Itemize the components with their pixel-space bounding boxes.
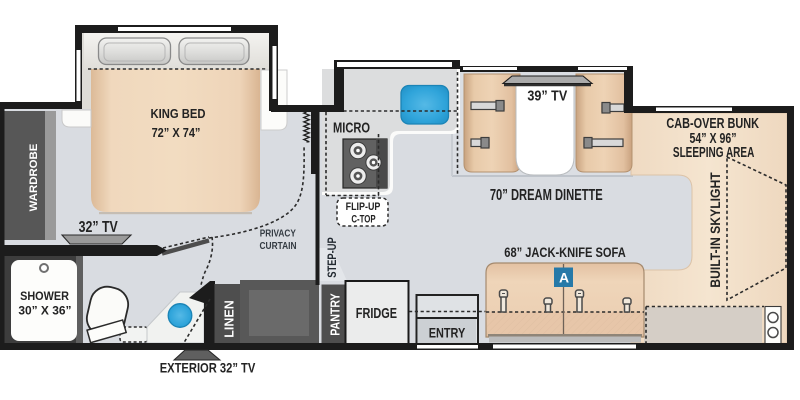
svg-text:PANTRY: PANTRY [327, 293, 342, 336]
svg-text:SLEEPING AREA: SLEEPING AREA [673, 143, 754, 161]
svg-text:32” TV: 32” TV [79, 218, 119, 236]
svg-text:72” X 74”: 72” X 74” [152, 125, 201, 140]
svg-text:SHOWER: SHOWER [20, 291, 69, 303]
svg-text:A: A [559, 270, 569, 286]
svg-text:C-TOP: C-TOP [351, 213, 375, 224]
svg-text:39” TV: 39” TV [527, 86, 568, 103]
svg-text:LINEN: LINEN [223, 300, 237, 338]
svg-text:FLIP-UP: FLIP-UP [346, 201, 381, 213]
svg-text:STEP-UP: STEP-UP [326, 237, 339, 277]
svg-text:MICRO: MICRO [333, 119, 370, 136]
svg-text:CURTAIN: CURTAIN [260, 240, 297, 251]
svg-text:EXTERIOR 32” TV: EXTERIOR 32” TV [160, 360, 256, 375]
svg-text:KING BED: KING BED [151, 106, 206, 121]
svg-text:FRIDGE: FRIDGE [356, 304, 398, 321]
svg-text:70” DREAM DINETTE: 70” DREAM DINETTE [490, 186, 603, 203]
svg-text:68” JACK-KNIFE SOFA: 68” JACK-KNIFE SOFA [504, 245, 625, 261]
svg-text:BUILT-IN SKYLIGHT: BUILT-IN SKYLIGHT [707, 172, 723, 287]
svg-text:PRIVACY: PRIVACY [260, 228, 296, 239]
svg-text:30” X 36”: 30” X 36” [18, 303, 71, 317]
svg-text:ENTRY: ENTRY [429, 325, 466, 340]
svg-text:WARDROBE: WARDROBE [28, 143, 40, 211]
